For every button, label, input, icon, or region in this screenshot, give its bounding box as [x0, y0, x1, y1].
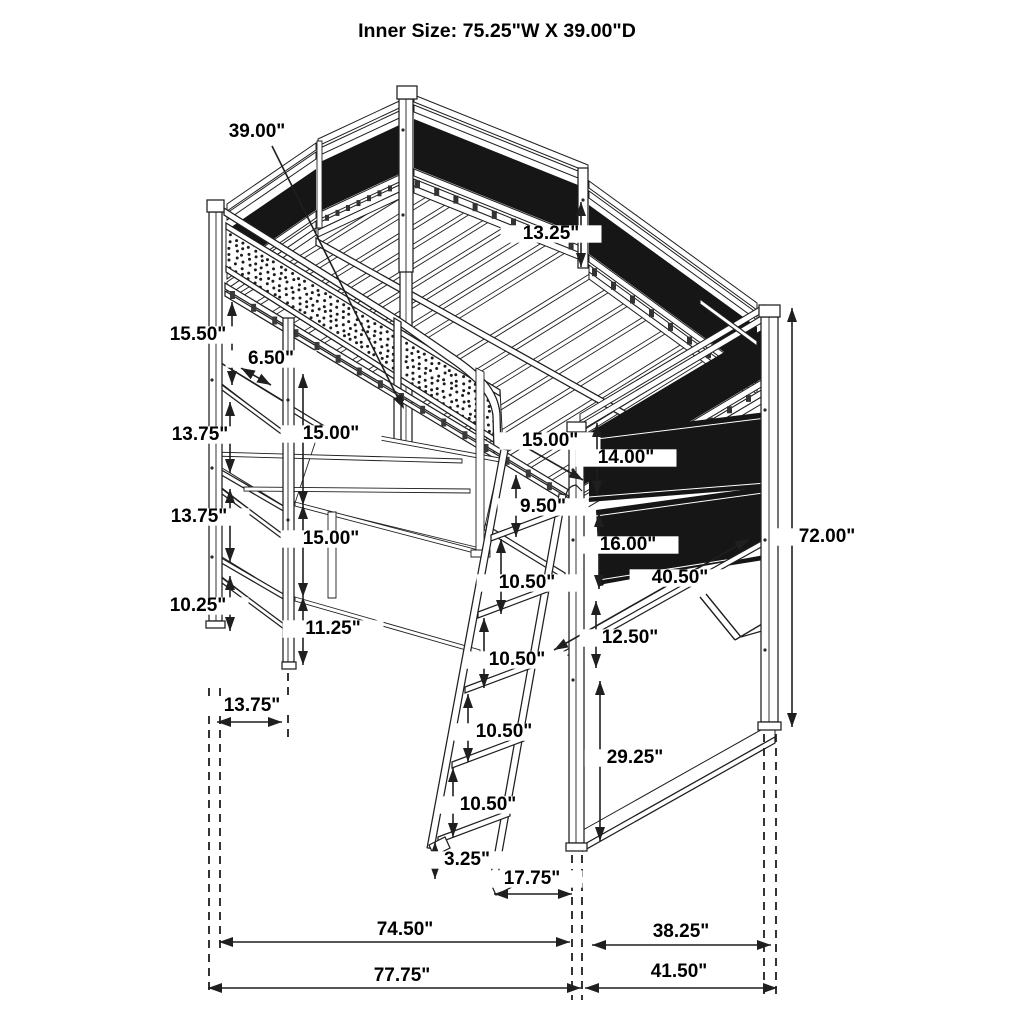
svg-text:15.00": 15.00": [522, 430, 579, 451]
svg-text:10.25": 10.25": [170, 595, 227, 616]
svg-text:10.50": 10.50": [460, 794, 517, 815]
svg-text:13.75": 13.75": [171, 506, 228, 527]
svg-text:29.25": 29.25": [607, 747, 664, 768]
svg-text:12.50": 12.50": [602, 627, 659, 648]
svg-text:15.00": 15.00": [303, 528, 360, 549]
svg-text:13.25": 13.25": [523, 223, 580, 244]
svg-text:9.50": 9.50": [520, 496, 566, 517]
svg-text:39.00": 39.00": [229, 121, 286, 142]
svg-text:3.25": 3.25": [444, 849, 490, 870]
svg-text:13.75": 13.75": [224, 695, 281, 716]
svg-text:14.00": 14.00": [598, 447, 655, 468]
svg-text:6.50": 6.50": [248, 348, 294, 369]
svg-text:Inner Size: 75.25"W X 39.00"D: Inner Size: 75.25"W X 39.00"D: [358, 20, 636, 42]
svg-text:10.50": 10.50": [476, 721, 533, 742]
svg-text:15.50": 15.50": [170, 324, 227, 345]
svg-text:17.75": 17.75": [504, 868, 561, 889]
svg-text:15.00": 15.00": [303, 423, 360, 444]
svg-text:10.50": 10.50": [489, 649, 546, 670]
svg-text:72.00": 72.00": [799, 526, 856, 547]
svg-text:13.75": 13.75": [172, 424, 229, 445]
svg-text:38.25": 38.25": [653, 921, 710, 942]
svg-text:40.50": 40.50": [652, 567, 709, 588]
svg-text:16.00": 16.00": [600, 534, 657, 555]
svg-text:11.25": 11.25": [305, 618, 361, 639]
svg-text:77.75": 77.75": [374, 965, 431, 986]
svg-text:41.50": 41.50": [651, 961, 708, 982]
svg-text:74.50": 74.50": [377, 919, 434, 940]
svg-text:10.50": 10.50": [499, 572, 556, 593]
